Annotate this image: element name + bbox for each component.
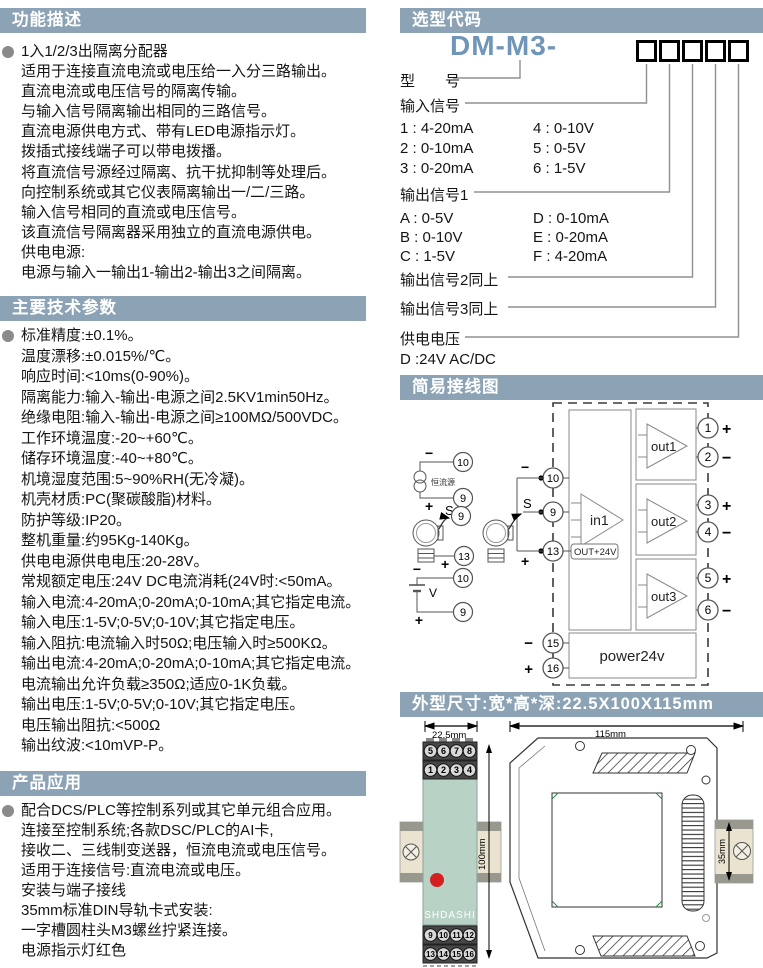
text-line: 响应时间:<10ms(0-90%)。 <box>21 367 360 388</box>
ccs-label: 恒流源 <box>431 477 455 487</box>
ordering-label-input: 输入信号 <box>400 95 460 116</box>
text-line: 输入信号相同的直流或电压信号。 <box>21 203 336 223</box>
terminal-number: 2 <box>705 450 712 464</box>
terminal-number: 4 <box>467 765 472 775</box>
polarity-sign: − <box>722 525 731 542</box>
model-code-box <box>682 40 703 62</box>
wiring-schematic: in1 OUT+24V out1 out2 out3 power24v 1 2 … <box>395 398 763 690</box>
text-line: 绝缘电阻:输入-输出-电源之间≥100MΩ/500VDC。 <box>21 408 360 429</box>
terminal-number: 15 <box>452 950 461 959</box>
section-header-params: 主要技术参数 <box>0 296 366 321</box>
terminal-number: 2 <box>441 765 446 775</box>
terminal-number: 13 <box>547 546 559 558</box>
power-block-label: power24v <box>599 648 665 665</box>
front-width-dim: 22.5mm <box>432 730 466 741</box>
option-cell: 5 : 0-5V <box>533 140 586 157</box>
terminal-number: 15 <box>547 638 559 650</box>
terminal-number: 9 <box>428 931 433 940</box>
option-cell: 3 : 0-20mA <box>400 160 473 177</box>
polarity-sign: − <box>521 459 529 475</box>
bullet-icon <box>2 330 14 342</box>
terminal-number: 6 <box>441 746 446 756</box>
model-code-box <box>705 40 726 62</box>
ordering-power-option: D :24V AC/DC <box>400 351 496 368</box>
vent-hatch-bottom <box>593 936 695 956</box>
text-line: 该直流信号隔离器采用独立的直流电源供电。 <box>21 223 336 243</box>
front-view: 22.5mm SHDASHI 5 6 7 8 1 2 3 4 <box>400 721 501 966</box>
terminal-number: 10 <box>547 473 559 485</box>
terminal-number: 10 <box>457 457 469 469</box>
terminal-number: 3 <box>705 498 712 512</box>
section-header-function: 功能描述 <box>0 8 366 33</box>
text-line: 机境湿度范围:5~90%RH(无冷凝)。 <box>21 470 360 491</box>
power-led <box>430 873 444 887</box>
terminal-number: 1 <box>428 765 433 775</box>
output-terminals: 1 2 3 4 5 6 + − + − + − <box>696 418 731 620</box>
option-cell: 6 : 1-5V <box>533 160 586 177</box>
label-window <box>552 793 662 907</box>
terminal-number: 10 <box>439 931 448 940</box>
polarity-sign: − <box>425 445 433 461</box>
module-body <box>423 779 477 925</box>
model-code-box <box>636 40 657 62</box>
text-line: 电流输出允许负载≥350Ω;适应0-1K负载。 <box>21 675 360 696</box>
terminal-number: 14 <box>439 950 448 959</box>
text-line: 将直流信号源经过隔离、抗干扰抑制等处理后。 <box>21 163 336 183</box>
text-line: 整机重量:约95Kg-140Kg。 <box>21 531 360 552</box>
terminal-number: 7 <box>454 746 459 756</box>
text-line: 输入电压:1-5V;0-5V;0-10V;其它指定电压。 <box>21 613 360 634</box>
terminal-number: 13 <box>458 551 470 563</box>
text-line: 一字槽圆柱头M3螺丝拧紧连接。 <box>21 921 341 941</box>
ordering-code-diagram: DM-M3- 型 号 输入信号 1 : 4-20mA 4 : 0-10V 2 :… <box>395 0 763 372</box>
input-amp-label: in1 <box>590 512 609 528</box>
ordering-label-output3: 输出信号3同上 <box>400 298 498 319</box>
front-height-dim: 100mm <box>477 838 488 870</box>
ordering-option-row: A : 0-5V D : 0-10mA <box>400 210 453 227</box>
text-line: 供电电源: <box>21 243 336 263</box>
option-cell: B : 0-10V <box>400 229 463 246</box>
text-line: 适用于连接信号:直流电流或电压。 <box>21 861 341 881</box>
text-line: 常规额定电压:24V DC电流消耗(24V时:<50mA。 <box>21 572 360 593</box>
text-line: 向控制系统或其它仪表隔离输出一/二/三路。 <box>21 183 336 203</box>
brand-label: SHDASHI <box>424 910 475 921</box>
text-line: 输入阻抗:电流输入时50Ω;电压输入时≥500KΩ。 <box>21 634 360 655</box>
option-cell: C : 1-5V <box>400 248 455 265</box>
terminal-number: 6 <box>705 603 712 617</box>
text-line: 电压输出阻抗:<500Ω <box>21 716 360 737</box>
polarity-sign: + <box>722 421 731 438</box>
ordering-label-output2: 输出信号2同上 <box>400 269 498 290</box>
text-line: 输出电压:1-5V;0-5V;0-10V;其它指定电压。 <box>21 695 360 716</box>
terminal-block-9to12: 9 10 11 12 <box>423 926 477 944</box>
text-line: 直流电源供电方式、带有LED电源指示灯。 <box>21 122 336 142</box>
ordering-label-output1: 输出信号1 <box>400 184 468 205</box>
text-line: 与输入信号隔离输出相同的三路信号。 <box>21 102 336 122</box>
terminal-number: 16 <box>465 950 474 959</box>
heatsink-fins <box>682 795 704 911</box>
model-code-prefix: DM-M3- <box>450 30 557 62</box>
application-list: 配合DCS/PLC等控制系列或其它单元组合应用。 连接至控制系统;各款DSC/P… <box>21 801 341 961</box>
polarity-sign: − <box>524 635 533 652</box>
bullet-icon <box>2 805 14 817</box>
transmitter2-group: − S + <box>483 459 543 569</box>
polarity-sign: − <box>722 603 731 620</box>
section-header-wiring: 简易接线图 <box>400 375 763 400</box>
terminal-number: 16 <box>547 663 559 675</box>
text-line: 防护等级:IP20。 <box>21 511 360 532</box>
ordering-option-row: B : 0-10V E : 0-20mA <box>400 229 463 246</box>
polarity-sign: + <box>521 553 529 569</box>
terminal-number: 1 <box>705 421 712 435</box>
text-line: 配合DCS/PLC等控制系列或其它单元组合应用。 <box>21 801 341 821</box>
transmitter1-group: S + 9 13 <box>413 503 474 572</box>
text-line: 温度漂移:±0.015%/℃。 <box>21 347 360 368</box>
out2-label: out2 <box>651 514 676 529</box>
terminal-number: 5 <box>705 571 712 585</box>
s-terminal-label: S <box>523 496 532 511</box>
section-header-application: 产品应用 <box>0 771 366 796</box>
bullet-icon <box>2 46 14 58</box>
rail-height-dim: 35mm <box>717 839 727 864</box>
polarity-sign: + <box>722 498 731 515</box>
terminal-number: 8 <box>467 746 472 756</box>
aux-24v-label: OUT+24V <box>574 547 617 558</box>
terminal-number: 11 <box>452 931 461 940</box>
terminal-number: 12 <box>465 931 474 940</box>
text-line: 接收二、三线制变送器，恒流电流或电压信号。 <box>21 841 341 861</box>
ordering-label-power: 供电电压 <box>400 328 460 349</box>
option-cell: 1 : 4-20mA <box>400 120 473 137</box>
ordering-option-row: 3 : 0-20mA 6 : 1-5V <box>400 160 473 177</box>
terminal-number: 5 <box>428 746 433 756</box>
terminal-number: 9 <box>460 607 466 619</box>
text-line: 安装与端子接线 <box>21 881 341 901</box>
polarity-sign: + <box>441 556 449 572</box>
text-line: 适用于连接直流电流或电压给一入分三路输出。 <box>21 62 336 82</box>
option-cell: E : 0-20mA <box>533 229 608 246</box>
side-view: 115mm 35mm <box>510 721 753 958</box>
text-line: 供电电源供电电压:20-28V。 <box>21 552 360 573</box>
text-line: 拨插式接线端子可以带电拨播。 <box>21 142 336 162</box>
wiring-diagram: in1 OUT+24V out1 out2 out3 power24v 1 2 … <box>395 398 763 690</box>
option-cell: F : 4-20mA <box>533 248 607 265</box>
text-line: 输出纹波:<10mVP-P。 <box>21 736 360 757</box>
text-line: 35mm标准DIN导轨卡式安装: <box>21 901 341 921</box>
technical-params-list: 标准精度:±0.1%。 温度漂移:±0.015%/℃。 响应时间:<10ms(0… <box>21 326 360 757</box>
terminal-block-1234: 1 2 3 4 <box>423 761 477 779</box>
terminal-number: 9 <box>458 511 464 523</box>
text-line: 电源与输入一输出1-输出2-输出3之间隔离。 <box>21 263 336 283</box>
option-cell: D : 0-10mA <box>533 210 609 227</box>
option-cell: 2 : 0-10mA <box>400 140 473 157</box>
voltage-label: V <box>429 586 437 600</box>
dimension-views: 22.5mm SHDASHI 5 6 7 8 1 2 3 4 <box>395 718 763 968</box>
function-description-list: 1入1/2/3出隔离分配器 适用于连接直流电流或电压给一入分三路输出。 直流电流… <box>21 42 336 283</box>
polarity-sign: + <box>722 571 731 588</box>
terminal-block-5678: 5 6 7 8 <box>423 742 477 760</box>
model-code-box <box>659 40 680 62</box>
text-line: 连接至控制系统;各款DSC/PLC的AI卡, <box>21 821 341 841</box>
polarity-sign: − <box>413 561 421 577</box>
polarity-sign: − <box>722 450 731 467</box>
text-line: 隔离能力:输入-输出-电源之间2.5KV1min50Hz。 <box>21 388 360 409</box>
text-line: 1入1/2/3出隔离分配器 <box>21 42 336 62</box>
constant-current-source-group: 恒流源 − + 10 9 <box>414 445 473 514</box>
vent-hatch-top <box>593 753 695 773</box>
terminal-number: 3 <box>454 765 459 775</box>
option-cell: A : 0-5V <box>400 210 453 227</box>
terminal-block-13to16: 13 14 15 16 <box>423 945 477 963</box>
polarity-sign: + <box>524 661 533 678</box>
ordering-option-row: 1 : 4-20mA 4 : 0-10V <box>400 120 473 137</box>
text-line: 工作环境温度:-20~+60℃。 <box>21 429 360 450</box>
text-line: 机壳材质:PC(聚碳酸脂)材料。 <box>21 490 360 511</box>
text-line: 标准精度:±0.1%。 <box>21 326 360 347</box>
terminal-number: 10 <box>457 573 469 585</box>
out3-label: out3 <box>651 589 676 604</box>
ordering-option-row: C : 1-5V F : 4-20mA <box>400 248 455 265</box>
polarity-sign: + <box>425 498 433 514</box>
option-cell: 4 : 0-10V <box>533 120 594 137</box>
dimension-drawing: 22.5mm SHDASHI 5 6 7 8 1 2 3 4 <box>395 718 763 968</box>
text-line: 储存环境温度:-40~+80℃。 <box>21 449 360 470</box>
text-line: 输入电流:4-20mA;0-20mA;0-10mA;其它指定电流。 <box>21 593 360 614</box>
terminal-number: 13 <box>426 950 435 959</box>
model-code-box <box>728 40 749 62</box>
text-line: 电源指示灯红色 <box>21 941 341 961</box>
ordering-label-model: 型 号 <box>400 70 460 91</box>
text-line: 输出电流:4-20mA;0-20mA;0-10mA;其它指定电流。 <box>21 654 360 675</box>
ordering-option-row: 2 : 0-10mA 5 : 0-5V <box>400 140 473 157</box>
out1-label: out1 <box>651 439 676 454</box>
terminal-number: 9 <box>460 493 466 505</box>
terminal-number: 9 <box>550 507 556 519</box>
section-header-dimensions: 外型尺寸:宽*高*深:22.5X100X115mm <box>400 692 763 717</box>
datasheet-page: { "colors":{ "header_bg":"#8ca3b5","head… <box>0 0 763 968</box>
text-line: 直流电流或电压信号的隔离传输。 <box>21 82 336 102</box>
terminal-number: 4 <box>705 525 712 539</box>
polarity-sign: + <box>415 612 423 628</box>
